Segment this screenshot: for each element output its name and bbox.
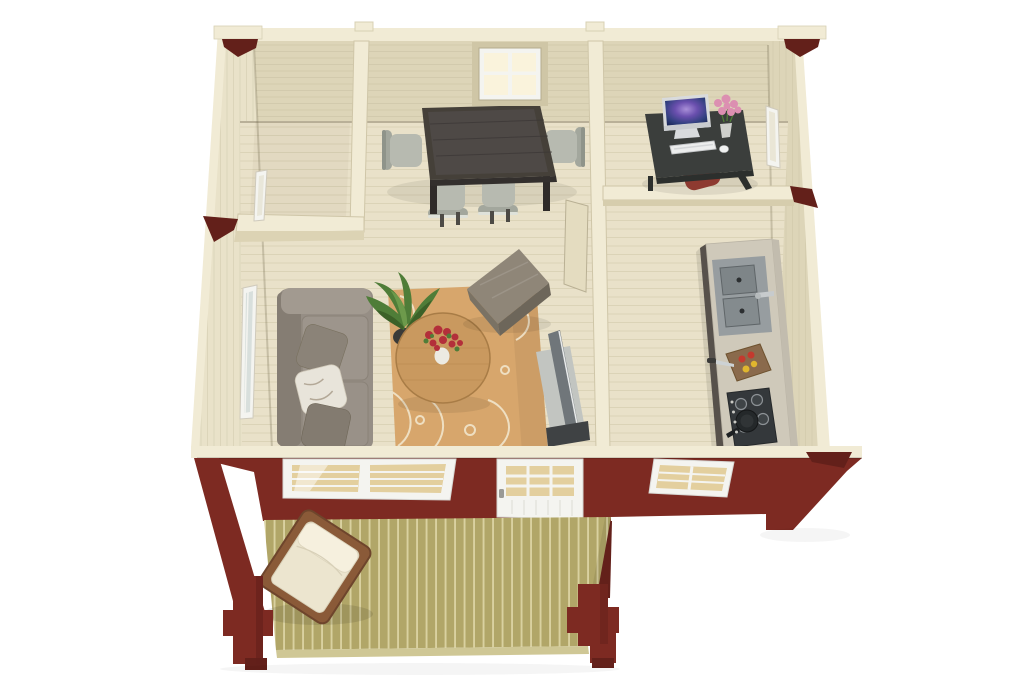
front-double-window	[283, 459, 456, 500]
partition-beam-stub	[355, 22, 373, 31]
sofa	[277, 288, 373, 454]
partition-beam-stub	[586, 22, 604, 31]
door-handle	[499, 489, 504, 498]
double-sink	[712, 256, 774, 336]
floorplan-canvas	[0, 0, 1024, 683]
deck	[257, 507, 611, 658]
open-door-panel	[564, 200, 588, 292]
ground-shadow	[760, 528, 850, 542]
front-door	[497, 459, 583, 519]
mouse	[720, 146, 729, 153]
right-wall-window-office	[766, 106, 780, 168]
gas-hob	[726, 388, 777, 447]
dining-chair-left	[382, 130, 422, 170]
ground-shadow	[220, 663, 620, 675]
top-wall-beam	[218, 28, 800, 41]
front-window-right	[649, 459, 734, 497]
back-wall-window	[472, 42, 548, 106]
cabin-floorplan-render	[0, 0, 1024, 683]
front-wall-plate	[191, 446, 862, 458]
